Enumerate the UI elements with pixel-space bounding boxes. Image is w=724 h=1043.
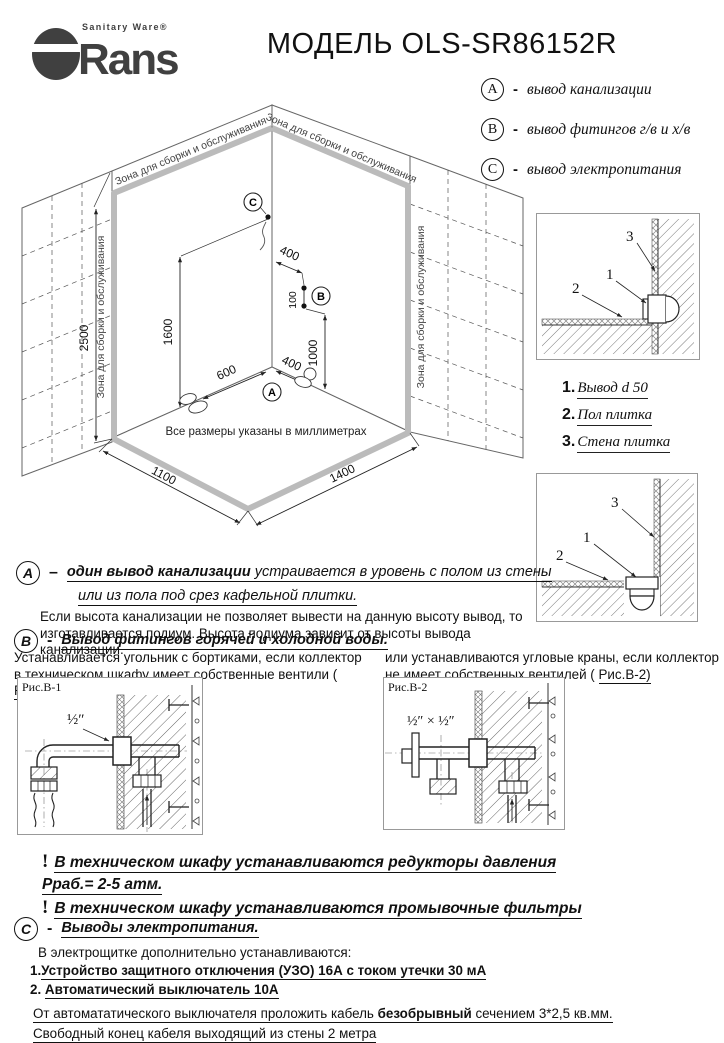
- legend-label-b: вывод фитингов г/в и х/в: [527, 121, 690, 139]
- callout-1: 1: [606, 267, 614, 283]
- section-c-intro: В электрощитке дополнительно устанавлива…: [38, 944, 694, 961]
- exclamation-mark: !: [42, 851, 48, 872]
- list-label: Вывод d 50: [577, 380, 648, 399]
- section-a-heading: A – один вывод канализации устраивается …: [16, 561, 556, 585]
- dim-1000: 1000: [306, 339, 320, 366]
- through-wall-fitting: [113, 737, 131, 765]
- warning-pressure: !В техническом шкафу устанавливаются ред…: [42, 851, 662, 896]
- dim-2500: 2500: [77, 324, 91, 351]
- page-title: МОДЕЛЬ OLS-SR86152R: [212, 28, 672, 61]
- point-b-label: B: [317, 291, 325, 303]
- zone-label-right-side: Зона для сборки и обслуживания: [415, 226, 427, 389]
- sewage-pipe-stub: [643, 295, 679, 323]
- list-label: Стена плитка: [577, 434, 670, 453]
- callout-2: 2: [572, 281, 580, 297]
- fitting-size-label: ½″: [67, 712, 85, 728]
- section-c-item2: 2. Автоматический выключатель 10А: [30, 981, 694, 998]
- warning-filters: !В техническом шкафу устанавливаются про…: [42, 897, 682, 919]
- orans-logo: Rans Sanitary Ware®: [30, 14, 192, 82]
- fitting-size-label: ½″ × ½″: [407, 714, 455, 729]
- section-c-circle: C: [14, 917, 38, 941]
- list-num: 1.: [562, 379, 575, 397]
- section-a-head-line2: или из пола под срез кафельной плитки.: [78, 587, 556, 605]
- branch-coupling: [133, 775, 161, 787]
- detail-drawing-wall-outlet: 3 1 2: [536, 213, 700, 360]
- figure-b2-angle-valve: Рис.В-2 ½″ × ½″: [383, 677, 565, 830]
- installation-sheet: { "header": { "brand": "Rans", "tagline"…: [0, 0, 724, 1024]
- dim-100: 100: [287, 291, 299, 309]
- list-num: 2.: [562, 406, 575, 424]
- hose-nut-hatched: [31, 767, 57, 779]
- outlet-b-dot-1: [301, 285, 306, 290]
- detail-drawing-floor-outlet: 3 1 2: [536, 473, 698, 622]
- brand-name: Rans: [78, 35, 178, 82]
- section-a-dash: –: [49, 564, 58, 582]
- legend-label-c: вывод электропитания: [527, 161, 682, 179]
- section-c-heading: C - Выводы электропитания.: [14, 917, 694, 941]
- detail-callout-list: 1. Вывод d 50 2. Пол плитка 3. Стена пли…: [562, 379, 670, 460]
- brand-tagline: Sanitary Ware®: [82, 22, 168, 32]
- valve-flange: [412, 733, 419, 777]
- section-a-head-line1: один вывод канализации устраивается в ур…: [67, 564, 552, 582]
- list-item: 3. Стена плитка: [562, 433, 670, 453]
- isometric-installation-drawing: Зона для сборки и обслуживания Зона для …: [0, 95, 530, 565]
- point-a-label: A: [268, 387, 276, 399]
- figure-b1-label: Рис.В-1: [22, 680, 61, 694]
- legend-label-a: вывод канализации: [527, 81, 652, 99]
- fig-b2-reference: Рис.В-2): [599, 667, 651, 684]
- callout-2: 2: [556, 548, 564, 564]
- section-c-item1: 1.Устройство защитного отключения (УЗО) …: [30, 962, 694, 979]
- figure-b1-elbow-fitting: Рис.В-1: [17, 677, 203, 835]
- section-c-cable-note: От автомататического выключателя проложи…: [33, 1005, 694, 1022]
- zone-label-left-side: Зона для сборки и обслуживания: [95, 236, 107, 399]
- list-item: 2. Пол плитка: [562, 406, 670, 426]
- through-wall-fitting: [469, 739, 487, 767]
- section-c-head: Выводы электропитания.: [61, 920, 258, 938]
- point-c-label: C: [249, 197, 257, 209]
- units-note: Все размеры указаны в миллиметрах: [165, 426, 366, 438]
- sewage-pipe-trap: [624, 577, 660, 619]
- section-b-dash: -: [47, 632, 52, 650]
- callout-3: 3: [626, 229, 634, 245]
- outlet-c-dot: [265, 214, 270, 219]
- outlet-b-dot-2: [301, 303, 306, 308]
- callout-1: 1: [583, 530, 591, 546]
- callout-3: 3: [611, 495, 619, 511]
- branch-coupling: [499, 781, 527, 793]
- list-num: 3.: [562, 433, 575, 451]
- valve-handle-hatched: [430, 779, 456, 794]
- list-item: 1. Вывод d 50: [562, 379, 670, 399]
- figure-b2-label: Рис.В-2: [388, 680, 427, 694]
- section-c: C - Выводы электропитания. В электрощитк…: [14, 917, 694, 1042]
- section-c-dash: -: [47, 920, 52, 938]
- list-label: Пол плитка: [577, 407, 652, 426]
- section-a-circle: A: [16, 561, 40, 585]
- dim-1600: 1600: [161, 318, 175, 345]
- section-b-head: Вывод фитингов горячей и холодной воды.: [61, 632, 388, 650]
- valve-stub: [402, 749, 412, 763]
- exclamation-mark: !: [42, 897, 48, 918]
- logo-oval-icon: [30, 28, 82, 80]
- section-c-cable-end-note: Свободный конец кабеля выходящий из стен…: [33, 1025, 694, 1042]
